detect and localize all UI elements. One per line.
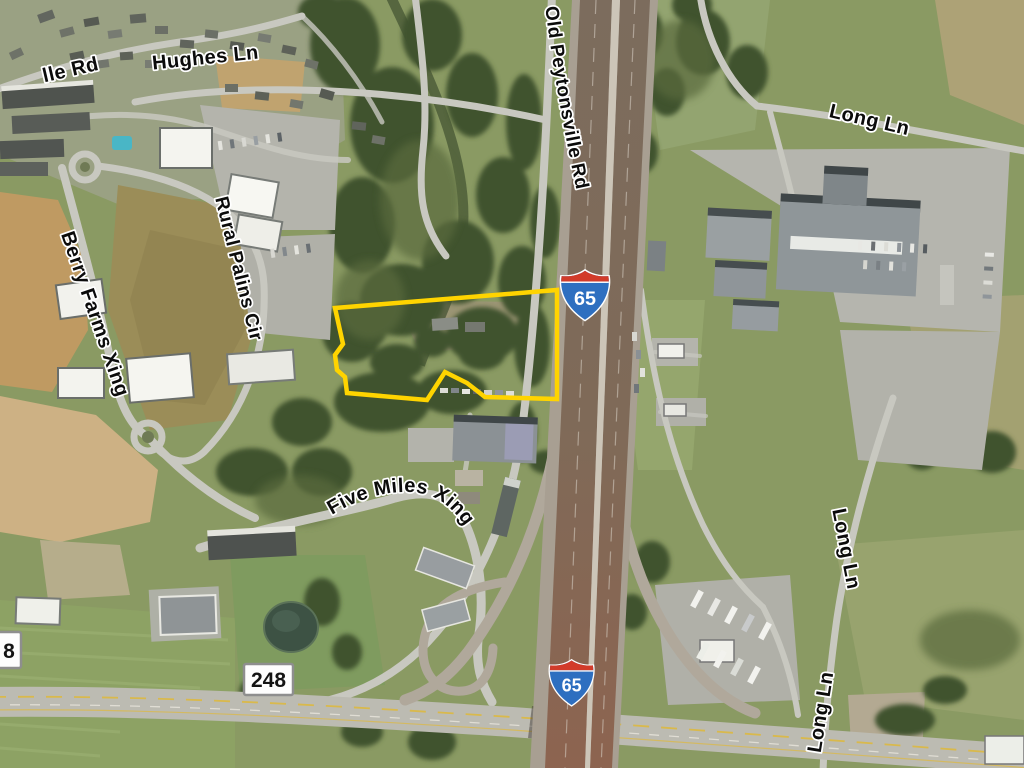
pool xyxy=(112,136,132,150)
aerial-map[interactable]: lle Rd Hughes Ln Old Peytonsville Rd Lon… xyxy=(0,0,1024,768)
i65-number-north: 65 xyxy=(574,288,596,310)
route-248-shield: 248 xyxy=(244,664,293,695)
office-building xyxy=(452,415,538,464)
map-canvas[interactable]: lle Rd Hughes Ln Old Peytonsville Rd Lon… xyxy=(0,0,1024,768)
pond xyxy=(264,602,318,652)
route-shield-partial: 8 xyxy=(0,632,21,668)
i65-number-south: 65 xyxy=(562,676,582,696)
route-partial-number: 8 xyxy=(3,640,15,663)
route-248-number: 248 xyxy=(251,669,286,692)
